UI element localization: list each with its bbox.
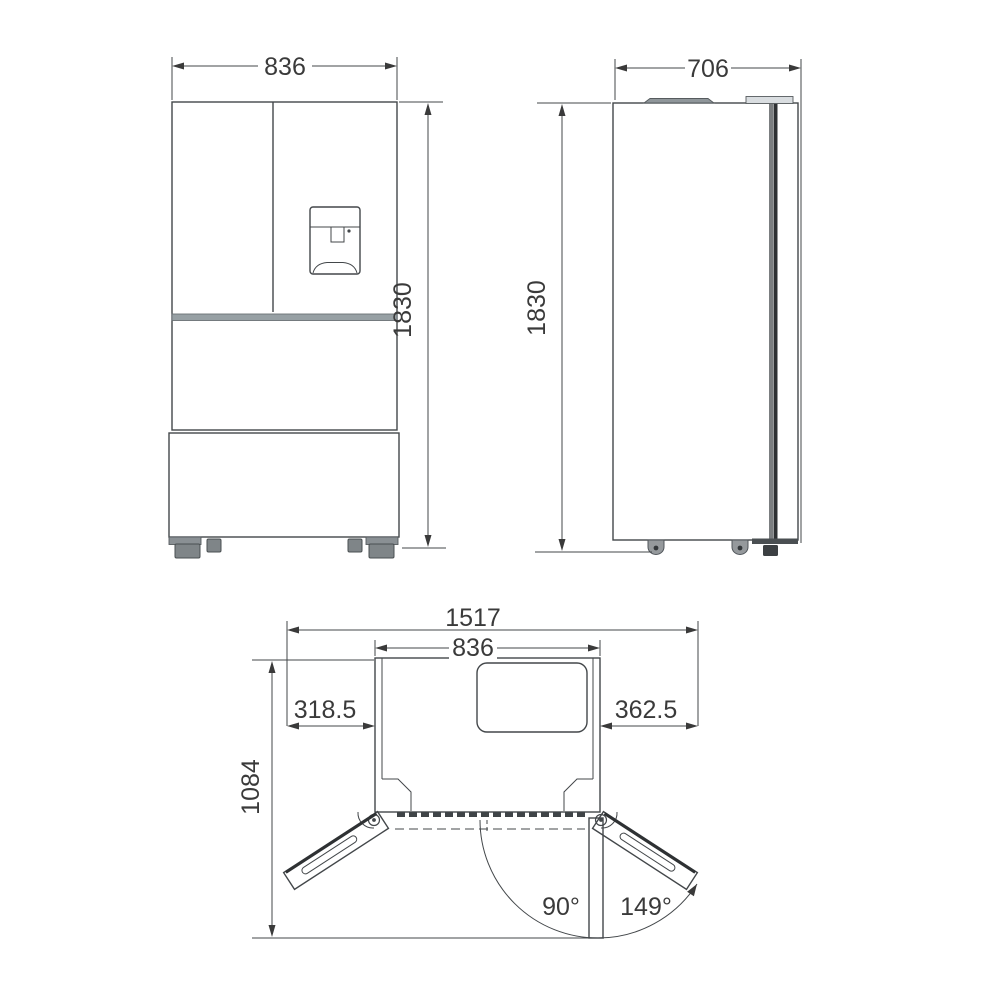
plan-left-corner-bracket (382, 779, 411, 811)
door-bottom-cap (752, 539, 798, 545)
dispenser-bezel (310, 207, 360, 274)
side-depth-label: 706 (687, 55, 729, 83)
front-cabinet-outline (172, 102, 397, 430)
dispenser-light-dot (347, 229, 350, 232)
dimension-drawing-page: 836 1830 (0, 0, 1000, 1000)
plan-depth-label: 1084 (237, 759, 265, 815)
plan-cabinet-width-label: 836 (452, 634, 494, 662)
front-width-dimension: 836 (172, 52, 397, 100)
plan-right-corner-bracket (564, 779, 593, 811)
right-front-foot (369, 544, 394, 558)
top-vent (644, 99, 714, 104)
right-projection-dimension: 362.5 (600, 696, 698, 730)
water-dispenser (310, 207, 360, 274)
side-view: 706 1830 (523, 54, 801, 556)
angle-90-label: 90° (542, 893, 580, 921)
plan-total-width-label: 1517 (445, 604, 501, 632)
right-foot-bracket (366, 537, 398, 545)
front-divider-band (172, 314, 397, 321)
left-projection-label: 318.5 (294, 696, 357, 724)
dispenser-paddle (331, 227, 344, 242)
front-width-label: 836 (264, 53, 306, 81)
front-height-label: 1830 (389, 282, 417, 338)
left-rear-foot (207, 539, 221, 552)
angle-149-label: 149° (620, 893, 672, 921)
front-roller-hub (654, 546, 659, 551)
front-feet (169, 537, 398, 558)
door-swing-arc-90 (480, 820, 598, 938)
right-projection-label: 362.5 (615, 696, 678, 724)
door-top-cap (746, 97, 793, 104)
front-view: 836 1830 (169, 52, 446, 558)
side-door-face-line (774, 103, 778, 540)
side-height-dimension: 1830 (523, 103, 652, 552)
side-depth-dimension: 706 (615, 54, 801, 543)
side-door-foot (763, 545, 778, 556)
side-height-label: 1830 (523, 280, 551, 336)
plan-top-recess (477, 663, 587, 732)
front-bottom-drawer (169, 433, 399, 537)
refrigerator-dimension-drawing: 836 1830 (0, 0, 1000, 1000)
right-door-open (593, 812, 698, 890)
dispenser-tray (313, 263, 357, 274)
left-front-foot (175, 544, 200, 558)
side-cabinet-outline (613, 103, 770, 540)
right-door-90-position (589, 818, 603, 938)
right-rear-foot (348, 539, 362, 552)
left-projection-dimension: 318.5 (287, 696, 375, 730)
plan-cabinet-outline (375, 658, 600, 812)
plan-view: 90° 149° 1517 836 318.5 (237, 604, 698, 938)
left-foot-bracket (169, 537, 201, 545)
rear-roller-hub (738, 546, 743, 551)
